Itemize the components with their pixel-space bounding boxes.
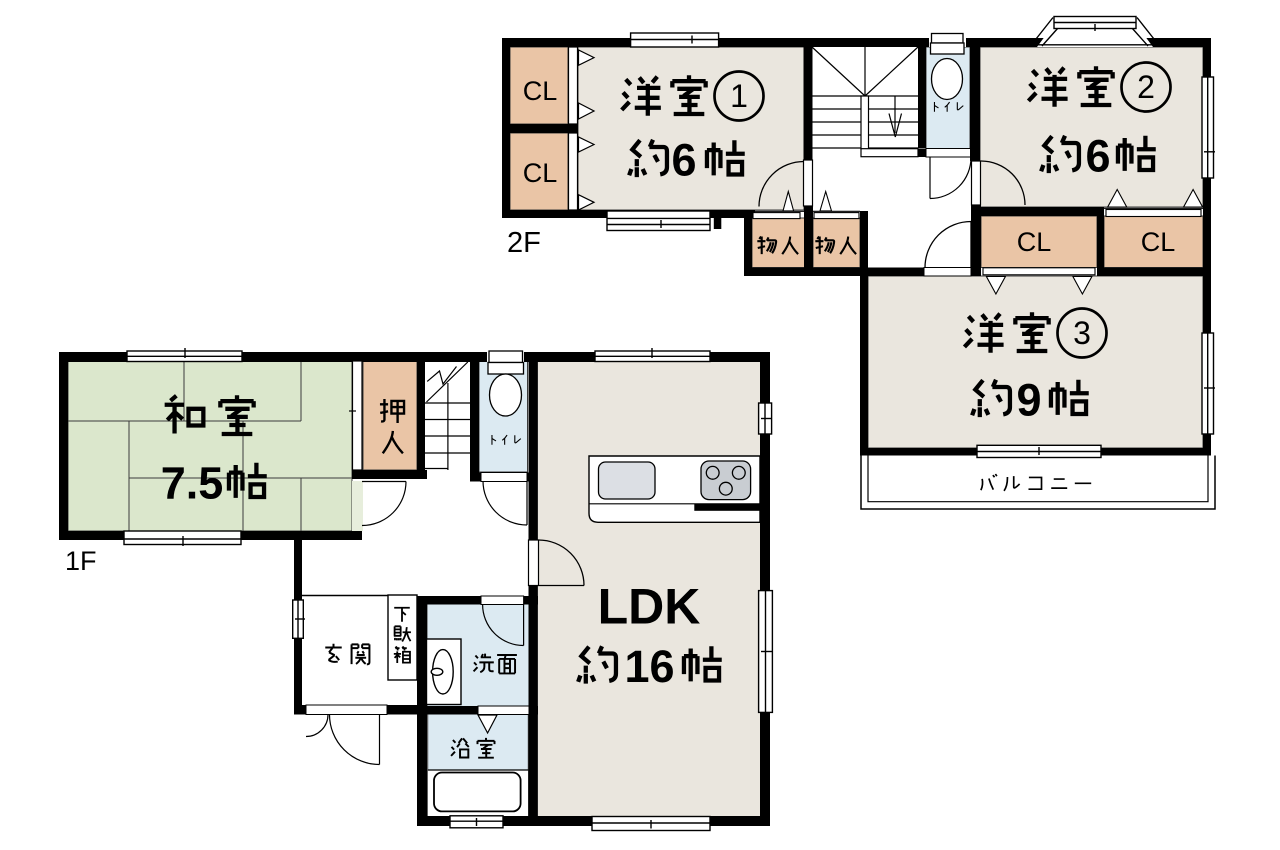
svg-text:CL: CL <box>523 76 558 106</box>
svg-text:1F: 1F <box>65 546 97 576</box>
svg-text:7.5: 7.5 <box>161 458 224 509</box>
svg-text:16: 16 <box>624 641 674 692</box>
svg-text:9: 9 <box>1016 375 1041 426</box>
svg-text:2: 2 <box>1137 69 1155 105</box>
svg-text:CL: CL <box>523 158 558 188</box>
svg-text:2F: 2F <box>507 227 541 259</box>
svg-text:6: 6 <box>1085 131 1110 182</box>
svg-text:1: 1 <box>730 78 748 114</box>
svg-text:6: 6 <box>671 135 696 186</box>
svg-text:3: 3 <box>1073 315 1091 351</box>
svg-text:CL: CL <box>1141 227 1176 257</box>
svg-text:LDK: LDK <box>598 579 701 635</box>
svg-text:CL: CL <box>1017 227 1052 257</box>
